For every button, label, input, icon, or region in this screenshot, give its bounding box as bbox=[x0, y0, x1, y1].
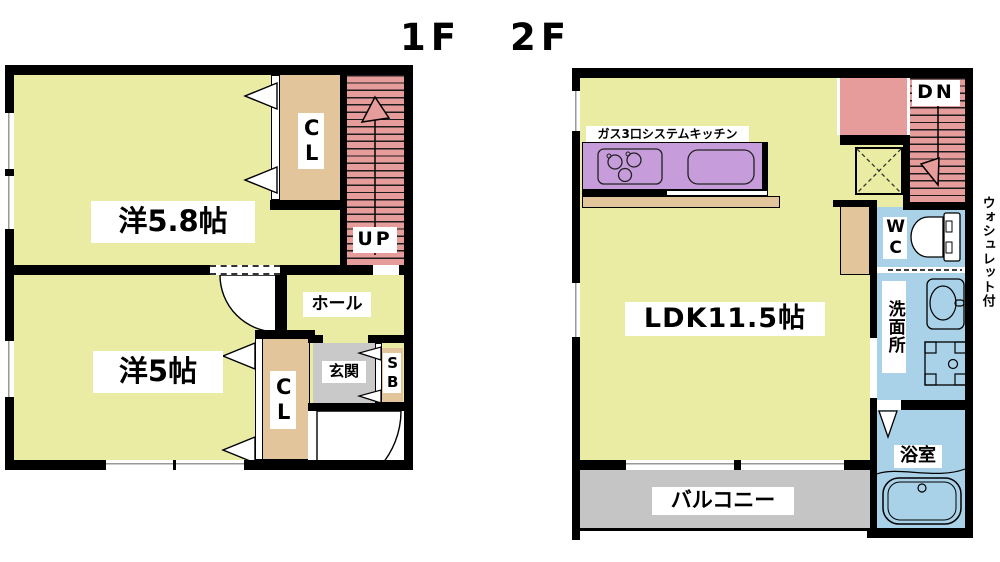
sliding-door-opening bbox=[210, 265, 280, 275]
stairs-entry-opening bbox=[373, 265, 399, 275]
bathroom-label: 浴室 bbox=[894, 445, 942, 468]
window-mullion bbox=[735, 460, 740, 470]
wall bbox=[965, 68, 973, 538]
kitchen-counter-front bbox=[582, 196, 780, 208]
wall bbox=[375, 402, 404, 411]
stairs-up-label: UP bbox=[353, 227, 397, 253]
bathroom-door-opening bbox=[877, 400, 901, 410]
floor1-title: 1F bbox=[400, 16, 461, 59]
wall bbox=[903, 145, 910, 202]
wall bbox=[404, 65, 413, 470]
wall bbox=[5, 265, 404, 275]
window bbox=[5, 175, 14, 230]
kitchen-counter-end bbox=[762, 142, 768, 190]
shoebox-door-strip bbox=[375, 343, 382, 402]
floor2-plan: ガス3口システムキッチン DN LDK11.5帖 WC 洗面所 浴室 バルコニー bbox=[570, 65, 975, 543]
floor1-plan: 洋5.8帖 CL UP ホール 洋5帖 CL 玄関 SB bbox=[5, 65, 413, 470]
stairs-down-label: DN bbox=[912, 80, 960, 106]
floor2-title: 2F bbox=[510, 16, 571, 59]
balcony-label: バルコニー bbox=[652, 487, 794, 515]
wall bbox=[903, 202, 965, 210]
storage-counter bbox=[840, 205, 870, 275]
shoebox-label: SB bbox=[383, 353, 401, 393]
wc-label: WC bbox=[883, 217, 907, 259]
wall bbox=[340, 75, 347, 265]
wall bbox=[572, 68, 973, 78]
closet1-label: CL bbox=[298, 113, 324, 169]
wall bbox=[368, 335, 404, 343]
void-x-area bbox=[855, 147, 903, 195]
wall bbox=[275, 275, 287, 333]
stairwell-void bbox=[840, 78, 910, 135]
bathroom-room bbox=[877, 410, 965, 528]
window bbox=[625, 460, 735, 470]
closet2-label: CL bbox=[270, 371, 296, 429]
wall bbox=[867, 528, 973, 538]
washlet-note: ウォシュレット付 bbox=[977, 170, 997, 334]
window bbox=[5, 340, 14, 398]
entrance-porch bbox=[308, 411, 404, 460]
closet2-door-strip bbox=[255, 338, 263, 460]
floorplan-page: 1F 2F bbox=[0, 0, 1000, 562]
wall bbox=[308, 335, 323, 343]
washroom-door-opening bbox=[870, 338, 877, 398]
wall bbox=[308, 403, 378, 411]
wall bbox=[270, 200, 347, 210]
kitchen-counter bbox=[582, 142, 768, 190]
washroom-label: 洗面所 bbox=[882, 281, 906, 373]
void-opening bbox=[837, 78, 840, 135]
window bbox=[572, 90, 580, 132]
stairs-gap bbox=[907, 78, 910, 135]
wall bbox=[840, 135, 910, 145]
balcony-parapet bbox=[580, 528, 867, 531]
ldk-label: LDK11.5帖 bbox=[625, 302, 825, 336]
window bbox=[740, 460, 845, 470]
window bbox=[572, 282, 580, 338]
closet1-door-strip bbox=[271, 75, 280, 200]
wall bbox=[5, 65, 413, 75]
window bbox=[5, 112, 14, 170]
window-mullion bbox=[173, 460, 176, 470]
hall-label: ホール bbox=[303, 292, 371, 317]
room1-label: 洋5.8帖 bbox=[91, 201, 255, 243]
room2-label: 洋5帖 bbox=[93, 351, 223, 393]
kitchen-label: ガス3口システムキッチン bbox=[586, 126, 749, 142]
wall bbox=[255, 330, 315, 338]
entrance-label: 玄関 bbox=[322, 361, 366, 383]
